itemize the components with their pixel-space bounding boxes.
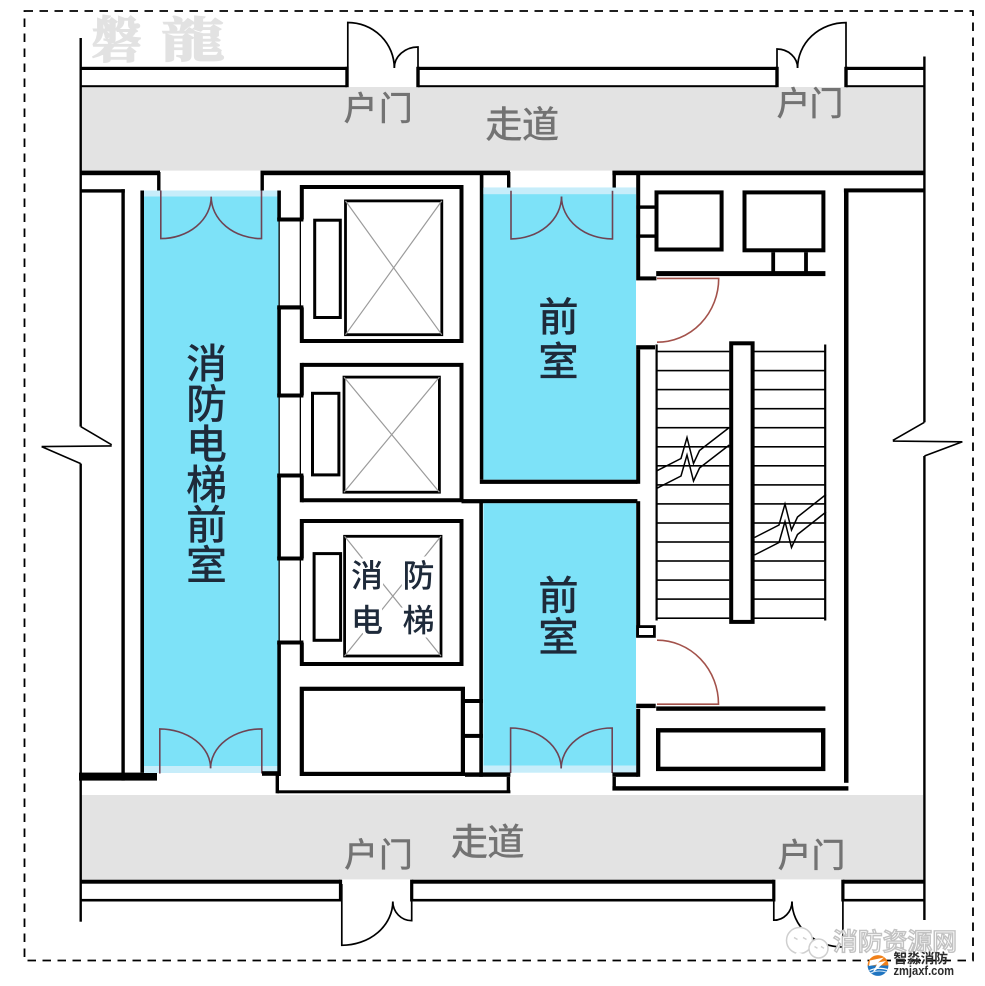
svg-text:zmjaxf.com: zmjaxf.com <box>894 963 955 978</box>
